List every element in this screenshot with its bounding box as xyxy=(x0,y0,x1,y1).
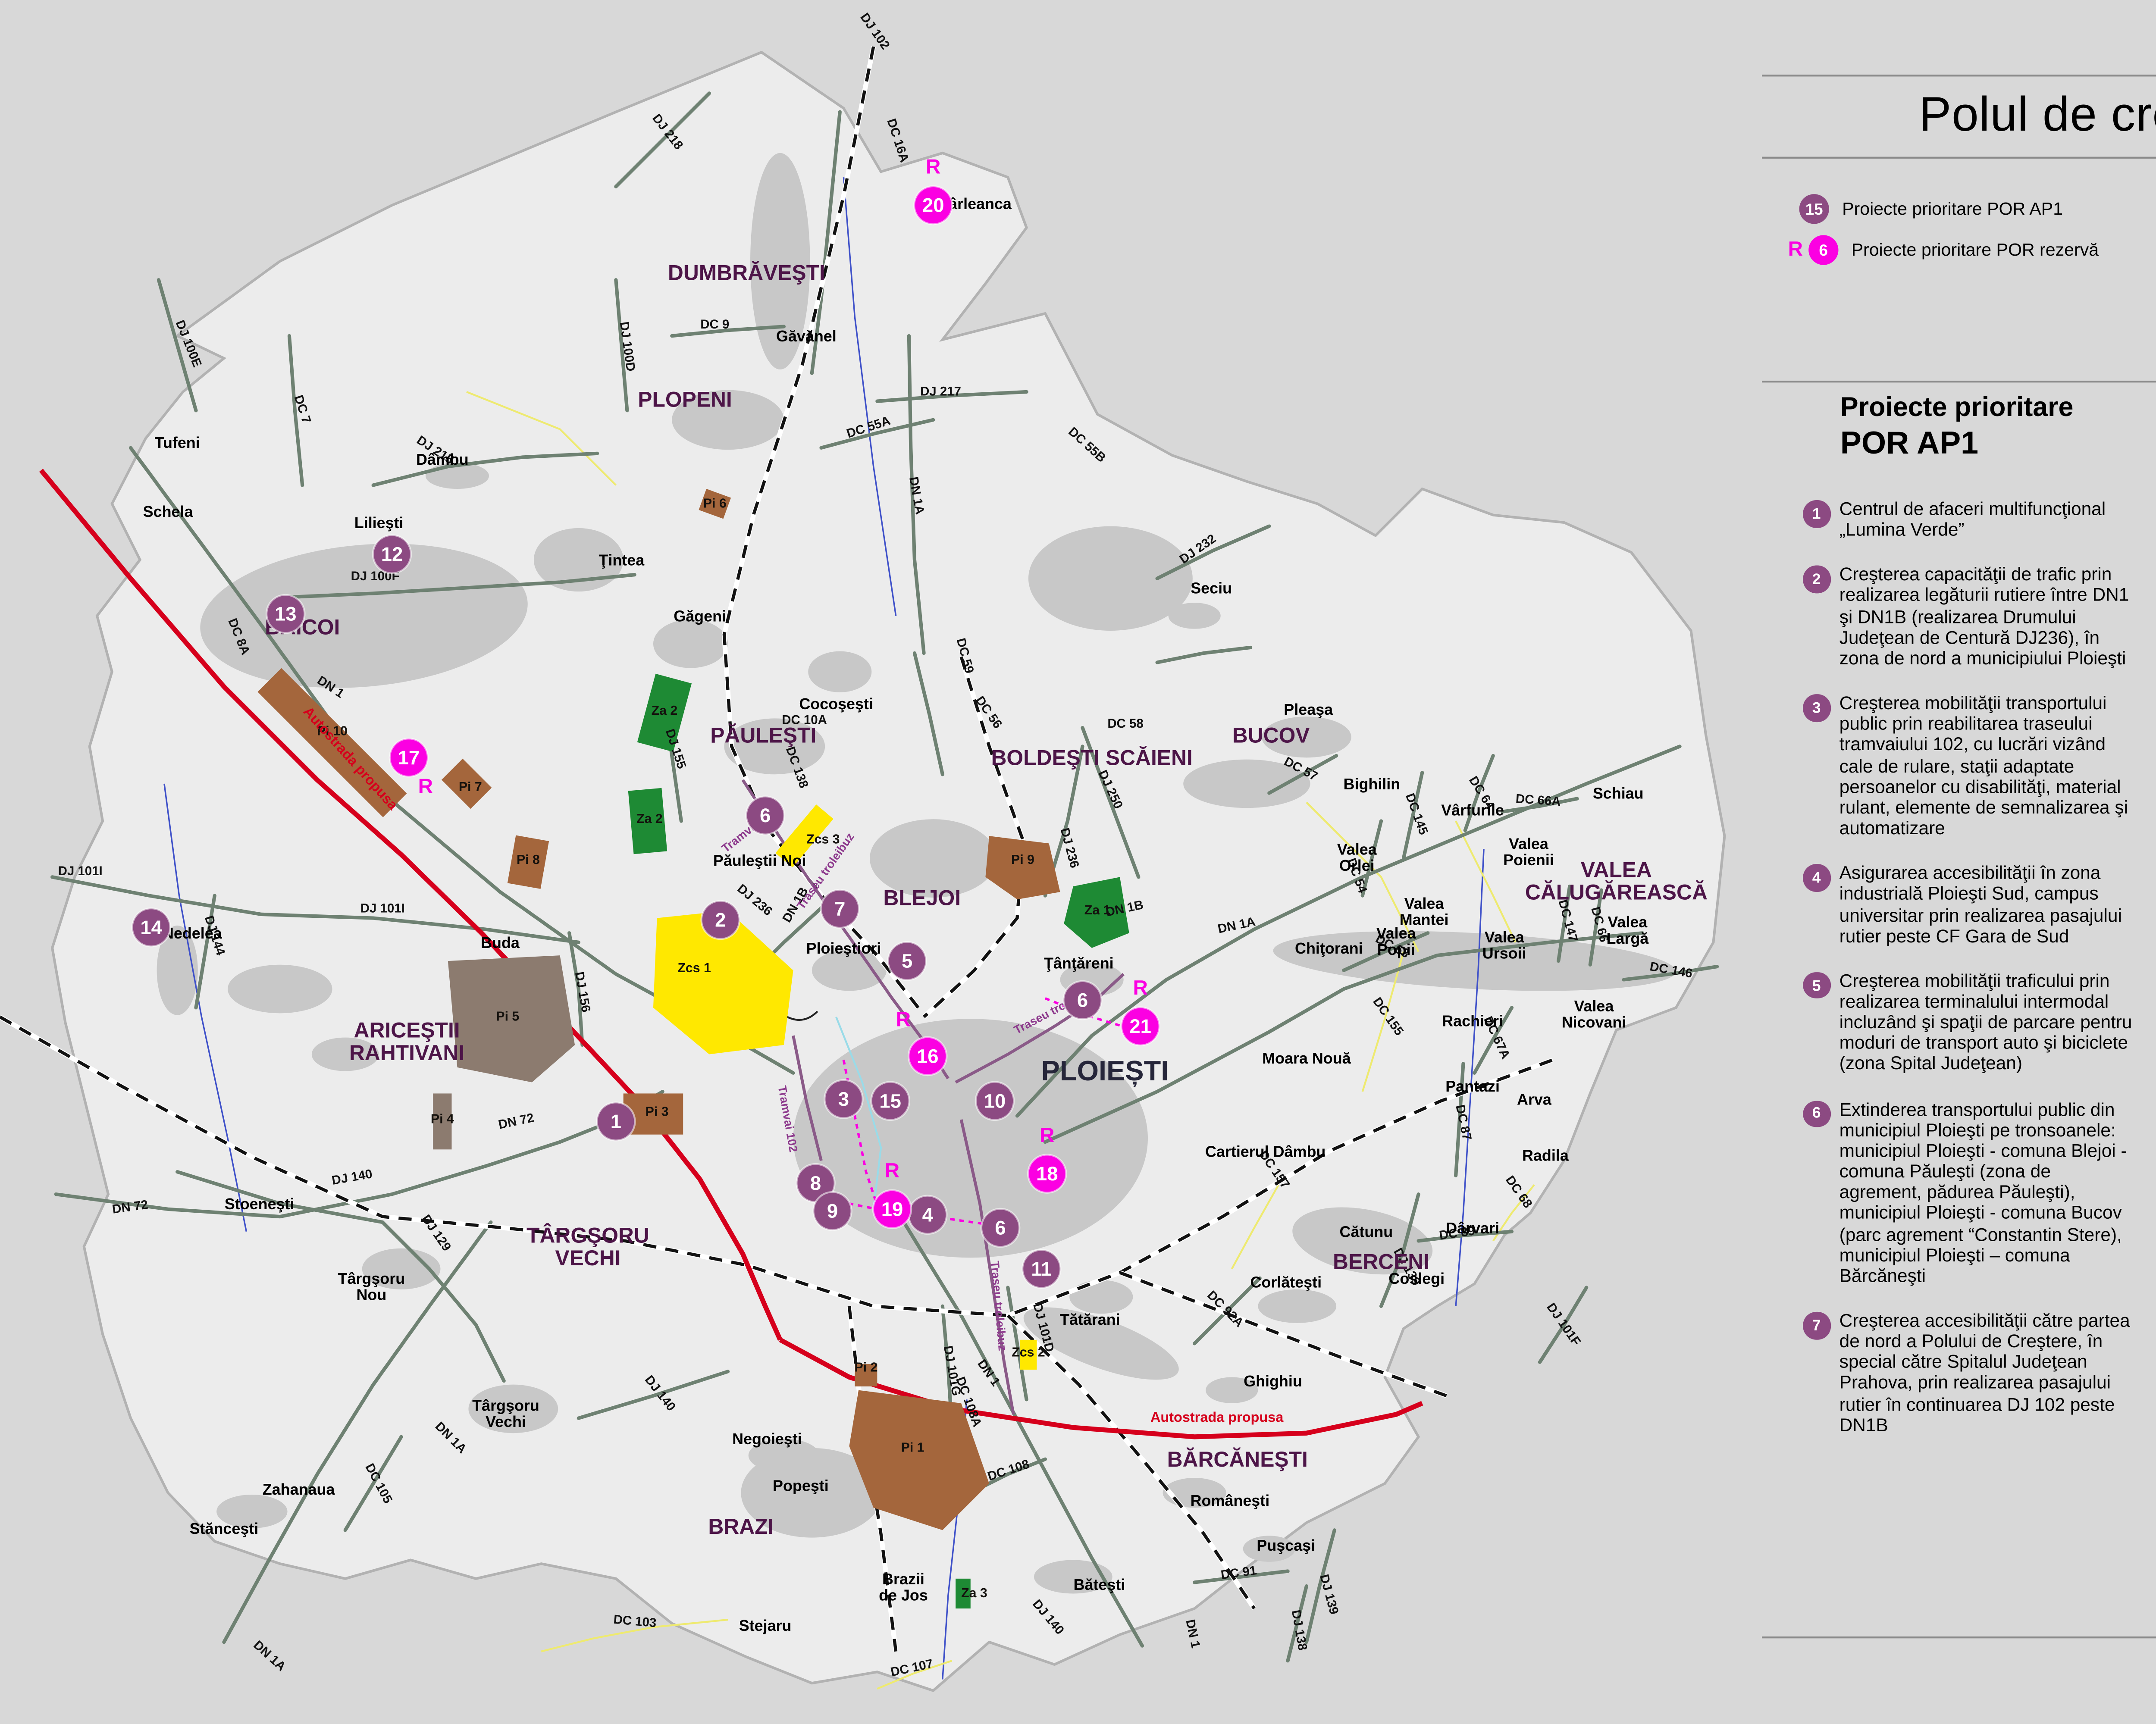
map-marker-number-12: 12 xyxy=(381,543,403,565)
legend-ap1-label: Proiecte prioritare POR AP1 xyxy=(1842,199,2063,219)
zone-label: Pi 7 xyxy=(459,780,482,794)
map-marker-r-prefix: R xyxy=(896,1008,911,1031)
page-title: Polul de creștere Ploiești - Prahova xyxy=(1762,86,2156,144)
commune-label: PLOPENI xyxy=(638,388,732,412)
bottom-rule xyxy=(1762,1636,2156,1638)
village-label: Ploieştiori xyxy=(806,939,881,957)
village-label: Tufeni xyxy=(155,434,200,451)
map-canvas: Pi 6Pi 10Pi 7Pi 8Pi 5Pi 4Pi 3Pi 2Pi 1Pi … xyxy=(0,0,1762,1724)
village-label: Stejaru xyxy=(739,1617,792,1634)
zone-label: Pi 1 xyxy=(901,1440,924,1455)
legend-ap1: 15 Proiecte prioritare POR AP1 xyxy=(1799,194,2063,224)
project-item-4: 4Asigurarea accesibilităţii în zona indu… xyxy=(1803,864,2135,948)
road-label: DJ 101I xyxy=(58,864,103,878)
project-badge-2: 2 xyxy=(1803,566,1830,593)
road-label: DJ 101F xyxy=(1544,1300,1583,1348)
map-marker-number-6: 6 xyxy=(760,804,771,826)
urban-area xyxy=(653,620,728,668)
road-label: DJ 217 xyxy=(920,385,961,399)
commune-label: ARICEŞTIIRAHTIVANI xyxy=(349,1018,464,1065)
zone-label: Pi 3 xyxy=(646,1104,669,1119)
map-marker-number-4: 4 xyxy=(922,1204,934,1226)
zone-label: Pi 2 xyxy=(854,1360,877,1374)
road-label: DJ 139 xyxy=(1317,1573,1341,1616)
village-label: Schela xyxy=(143,503,194,520)
map-marker-number-10: 10 xyxy=(984,1090,1006,1112)
road-label: DN 1 xyxy=(1183,1618,1203,1649)
road-label: DC 9 xyxy=(700,317,729,332)
zone-label: Zcs 2 xyxy=(1012,1345,1045,1360)
village-label: Vârfurile xyxy=(1441,801,1504,819)
map-marker-number-20: 20 xyxy=(922,194,944,216)
urban-area xyxy=(1069,1280,1133,1314)
zone-label: Zcs 1 xyxy=(677,961,711,975)
project-badge-4: 4 xyxy=(1803,864,1830,892)
map-marker-number-1: 1 xyxy=(611,1111,621,1133)
zone-label: Za 2 xyxy=(652,704,678,718)
map-marker-number-3: 3 xyxy=(838,1088,849,1110)
map-marker-number-17: 17 xyxy=(398,747,420,769)
village-label: ValeaMantei xyxy=(1400,895,1449,929)
commune-label: BLEJOI xyxy=(883,885,961,910)
commune-label: BERCENI xyxy=(1333,1249,1429,1273)
village-label: Arva xyxy=(1517,1090,1552,1108)
project-item-6: 6Extinderea transportului public din mun… xyxy=(1803,1100,2135,1288)
project-item-1: 1Centrul de afaceri multifuncţional „Lum… xyxy=(1803,500,2135,542)
zone-label: Za 2 xyxy=(636,812,663,826)
map-marker-number-14: 14 xyxy=(140,917,162,939)
project-badge-7: 7 xyxy=(1803,1312,1830,1339)
village-label: ValeaPopii xyxy=(1376,924,1416,958)
project-text-7: Creşterea accesibilităţii către partea d… xyxy=(1839,1312,2135,1437)
map-marker-number-5: 5 xyxy=(902,950,912,972)
commune-label: BĂRCĂNEŞTI xyxy=(1167,1447,1308,1471)
village-label: Radila xyxy=(1522,1146,1569,1164)
village-label: Păuleştii Noi xyxy=(713,851,806,869)
zone-label: Za 3 xyxy=(961,1586,987,1600)
village-label: Corlăteşti xyxy=(1250,1273,1322,1291)
road-label: DC 58 xyxy=(1107,717,1143,731)
village-label: ValeaPoienii xyxy=(1503,835,1554,869)
commune-label: PĂULEŞTI xyxy=(710,723,816,748)
section-ap1-line2: POR AP1 xyxy=(1840,426,2074,462)
legend-rezerva-label: Proiecte prioritare POR rezervă xyxy=(1852,240,2099,260)
commune-label: BUCOV xyxy=(1232,723,1310,748)
road-label: DC 16A xyxy=(884,117,912,164)
poster: Pi 6Pi 10Pi 7Pi 8Pi 5Pi 4Pi 3Pi 2Pi 1Pi … xyxy=(0,0,2156,1724)
map-marker-number-7: 7 xyxy=(834,898,845,920)
commune-label: DUMBRĂVEŞTI xyxy=(668,260,825,285)
project-text-2: Creşterea capacităţii de trafic prin rea… xyxy=(1839,566,2135,670)
village-label: Chiţorani xyxy=(1295,939,1363,957)
map-marker-r-prefix: R xyxy=(926,156,940,178)
village-label: Găvănel xyxy=(776,327,837,345)
village-label: Moara Nouă xyxy=(1262,1049,1351,1067)
legend-rezerva-badge: 6 xyxy=(1808,235,1838,265)
map-marker-r-prefix: R xyxy=(1040,1124,1054,1147)
urban-area xyxy=(1169,603,1221,629)
village-label: Buda xyxy=(481,934,520,951)
commune-label: BOLDEŞTI SCĂIENI xyxy=(991,746,1192,770)
village-label: Băteşti xyxy=(1074,1576,1125,1593)
map-marker-number-21: 21 xyxy=(1129,1015,1151,1037)
motorway-label: Autostrada propusa xyxy=(1150,1409,1284,1425)
village-label: Dârvari xyxy=(1446,1219,1499,1237)
title-rule-top xyxy=(1762,75,2156,76)
commune-label: BRAZI xyxy=(708,1514,774,1539)
village-label: ValeaOrlei xyxy=(1337,840,1377,874)
village-label: Ţânţăreni xyxy=(1044,954,1114,972)
village-label: Ţintea xyxy=(599,551,645,569)
road-label: DC 103 xyxy=(613,1612,657,1630)
zone-label: Zcs 3 xyxy=(806,832,840,846)
village-label: Pleaşa xyxy=(1284,701,1333,718)
road-label: DN 1A xyxy=(251,1638,288,1674)
village-label: Popeşti xyxy=(773,1477,829,1494)
village-label: ValeaLargă xyxy=(1606,913,1649,947)
project-item-7: 7Creşterea accesibilităţii către partea … xyxy=(1803,1312,2135,1437)
project-badge-6: 6 xyxy=(1803,1100,1830,1127)
project-item-3: 3Creşterea mobilităţii transportului pub… xyxy=(1803,695,2135,840)
zone-label: Pi 9 xyxy=(1011,853,1034,867)
village-label: Zahanaua xyxy=(263,1480,335,1498)
map-marker-number-8: 8 xyxy=(810,1172,821,1194)
legend-ap1-badge: 15 xyxy=(1799,194,1829,224)
village-label: Puşcaşi xyxy=(1257,1536,1315,1554)
village-label: Negoieşti xyxy=(732,1430,802,1448)
village-label: Stănceşti xyxy=(190,1520,259,1537)
map-marker-number-2: 2 xyxy=(715,909,726,931)
village-label: Dâmbu xyxy=(416,451,469,468)
urban-area xyxy=(228,965,332,1014)
info-panel: Polul de creștere Ploiești - Prahova 15 … xyxy=(1762,0,2156,1724)
village-label: Stoeneşti xyxy=(225,1195,295,1213)
zone-label: Pi 6 xyxy=(703,496,727,510)
urban-area xyxy=(1028,526,1193,631)
section-ap1-line1: Proiecte prioritare xyxy=(1840,396,2074,426)
project-item-2: 2Creşterea capacităţii de trafic prin re… xyxy=(1803,566,2135,670)
project-text-6: Extinderea transportului public din muni… xyxy=(1839,1100,2135,1288)
village-label: Cartierul Dâmbu xyxy=(1205,1143,1326,1161)
project-item-5: 5Creşterea mobilităţii traficului prin r… xyxy=(1803,972,2135,1076)
village-label: Schiau xyxy=(1593,785,1644,802)
urban-area xyxy=(1258,1289,1336,1323)
village-label: Cătunu xyxy=(1340,1223,1393,1241)
road-label: DJ 101I xyxy=(360,901,405,916)
map-marker-number-11: 11 xyxy=(1031,1258,1052,1280)
project-text-3: Creşterea mobilităţii transportului publ… xyxy=(1839,695,2135,840)
map-marker-number-6: 6 xyxy=(1077,989,1088,1011)
village-label: Rachieri xyxy=(1442,1012,1503,1030)
title-rule-bottom xyxy=(1762,157,2156,159)
village-label: Româneşti xyxy=(1191,1492,1270,1509)
project-text-5: Creşterea mobilităţii traficului prin re… xyxy=(1839,972,2135,1076)
map-marker-r-prefix: R xyxy=(418,775,433,798)
project-text-1: Centrul de afaceri multifuncţional „Lumi… xyxy=(1839,500,2135,542)
map-marker-number-13: 13 xyxy=(275,603,297,625)
map-marker-number-6: 6 xyxy=(995,1217,1006,1239)
zone-label: Pi 5 xyxy=(496,1010,519,1024)
project-badge-1: 1 xyxy=(1803,500,1830,527)
legend-r-prefix: R xyxy=(1788,239,1803,261)
village-label: ValeaUrsoii xyxy=(1482,928,1526,962)
village-label: Tătărani xyxy=(1060,1311,1120,1328)
map-marker-r-prefix: R xyxy=(885,1159,899,1182)
village-label: Pantazi xyxy=(1445,1077,1500,1095)
map-marker-r-prefix: R xyxy=(1133,976,1147,999)
project-text-4: Asigurarea accesibilităţii în zona indus… xyxy=(1839,864,2135,948)
village-label: Găgeni xyxy=(674,607,726,625)
village-label: Braziide Jos xyxy=(879,1570,928,1604)
legend-rule xyxy=(1762,381,2156,382)
road-label: DJ 102 xyxy=(857,10,892,52)
legend-rezerva: R 6 Proiecte prioritare POR rezervă xyxy=(1788,235,2099,265)
village-label: Cocoşeşti xyxy=(799,695,873,713)
project-badge-3: 3 xyxy=(1803,695,1830,722)
village-label: Bighilin xyxy=(1344,775,1401,793)
zone-label: Pi 8 xyxy=(517,853,540,867)
projects-column-1: 1Centrul de afaceri multifuncţional „Lum… xyxy=(1803,500,2135,1461)
city-label: PLOIEȘTI xyxy=(1041,1055,1169,1087)
zone-label: Pi 4 xyxy=(431,1112,454,1126)
project-badge-5: 5 xyxy=(1803,972,1830,999)
village-label: Seciu xyxy=(1191,579,1232,597)
urban-area xyxy=(808,651,871,692)
village-label: Nedelea xyxy=(163,924,222,942)
map-marker-number-9: 9 xyxy=(827,1200,838,1222)
village-label: Ghighiu xyxy=(1244,1372,1302,1390)
map-marker-number-19: 19 xyxy=(881,1198,903,1220)
section-header-ap1: Proiecte prioritare POR AP1 xyxy=(1840,396,2074,462)
map-marker-number-15: 15 xyxy=(879,1090,901,1112)
map-marker-number-18: 18 xyxy=(1036,1163,1058,1185)
village-label: Lilieşti xyxy=(354,514,404,532)
map-marker-number-16: 16 xyxy=(917,1045,939,1067)
